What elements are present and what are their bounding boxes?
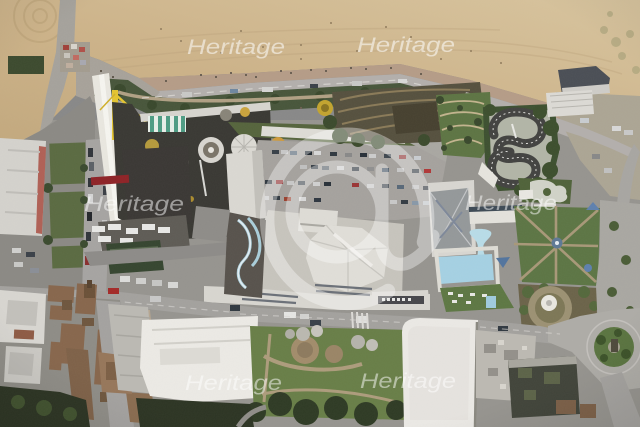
svg-text:Heritage: Heritage (187, 36, 285, 59)
svg-text:Heritage: Heritage (360, 370, 456, 393)
svg-text:Heritage: Heritage (465, 192, 557, 215)
svg-text:Heritage: Heritage (185, 372, 282, 395)
svg-text:Heritage: Heritage (84, 193, 184, 216)
svg-text:Heritage: Heritage (357, 34, 455, 57)
